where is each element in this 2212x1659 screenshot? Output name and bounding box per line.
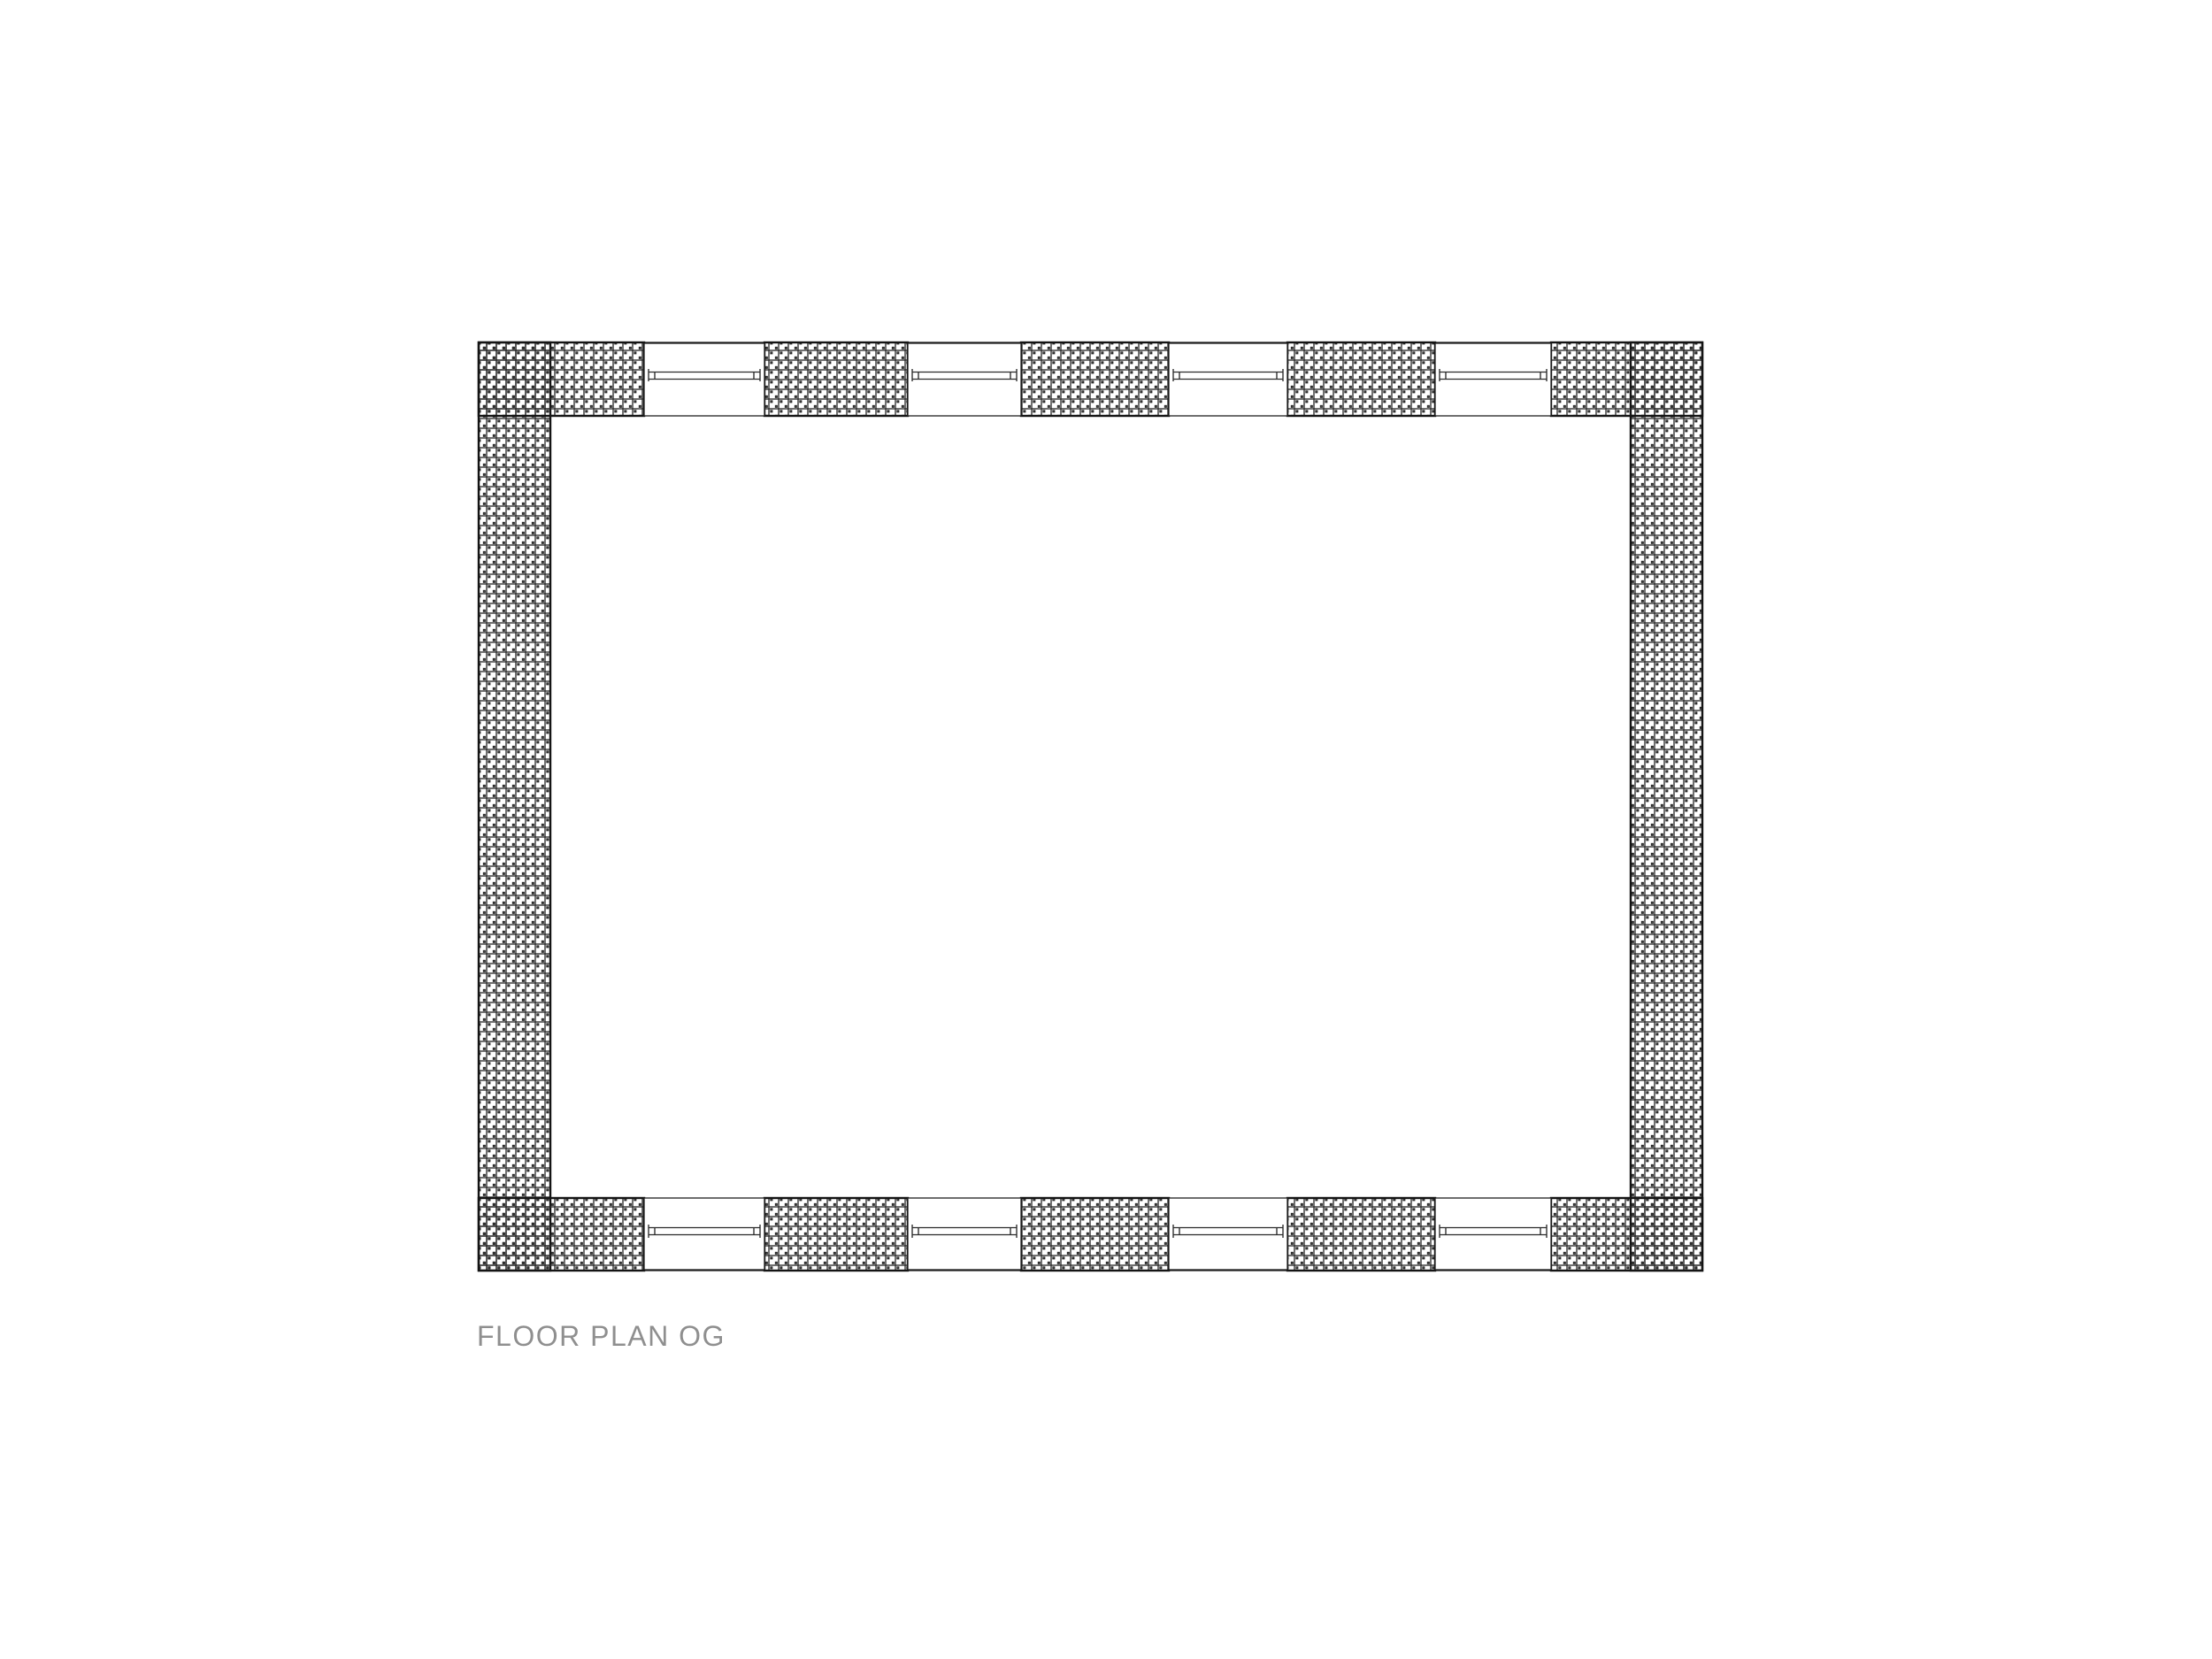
plan-title: FLOOR PLAN OG <box>477 1320 726 1353</box>
floor-plan-page: FLOOR PLAN OG <box>0 0 2212 1659</box>
exterior-walls <box>479 342 1702 1271</box>
floor-plan-drawing <box>0 0 2212 1659</box>
